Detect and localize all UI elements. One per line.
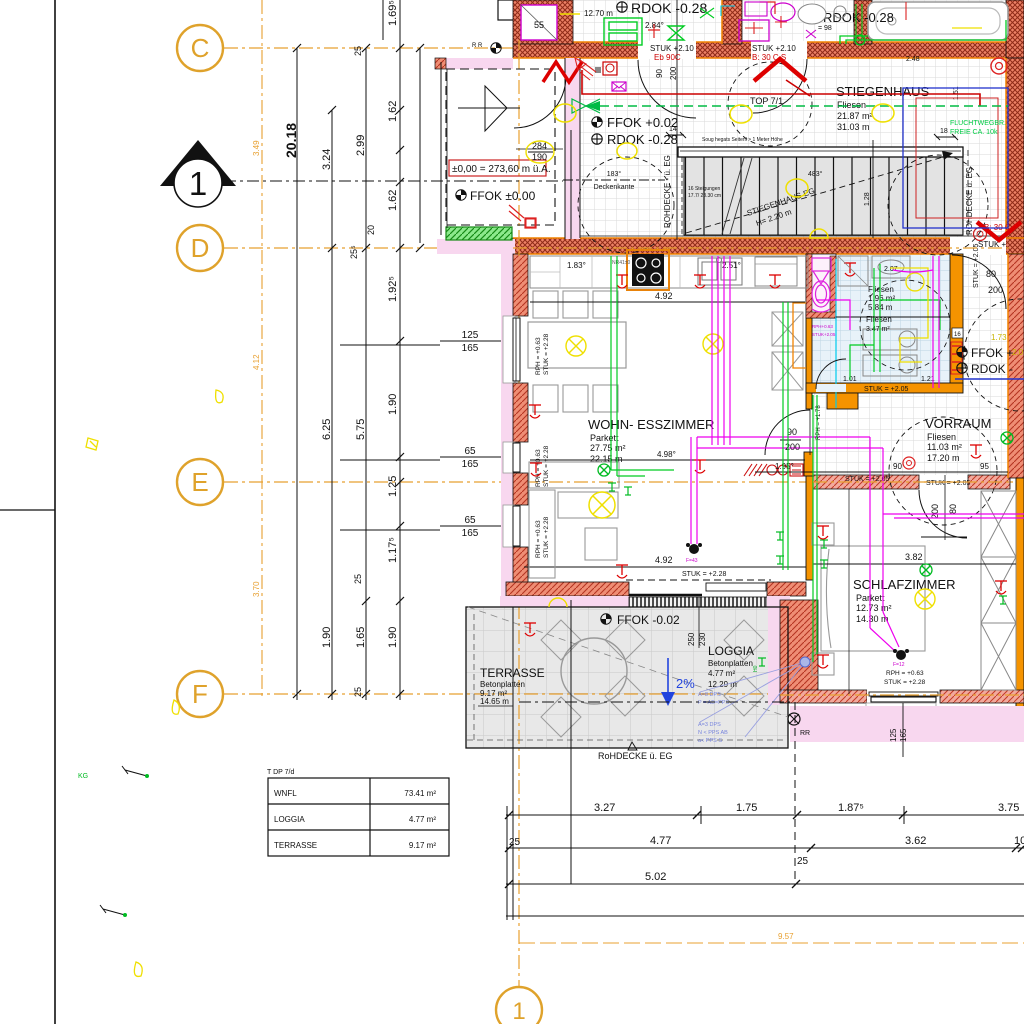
svg-text:4.77 m²: 4.77 m² xyxy=(409,815,436,824)
svg-text:STUK = +2.28: STUK = +2.28 xyxy=(543,516,550,558)
svg-text:14.30 m: 14.30 m xyxy=(856,614,889,624)
svg-text:STUK = +2.05: STUK = +2.05 xyxy=(926,480,970,487)
svg-text:31.03 m: 31.03 m xyxy=(837,122,870,132)
svg-text:WNFL: WNFL xyxy=(274,789,297,798)
svg-text:RoHDECKE ü. EG: RoHDECKE ü. EG xyxy=(598,751,673,761)
svg-text:STUK = +2.28: STUK = +2.28 xyxy=(543,333,550,375)
svg-text:A=8 DPS: A=8 DPS xyxy=(698,692,721,698)
svg-text:LOGGIA: LOGGIA xyxy=(708,644,754,658)
svg-text:18: 18 xyxy=(940,128,948,135)
svg-text:16: 16 xyxy=(954,332,961,338)
svg-text:SCHLAFZIMMER: SCHLAFZIMMER xyxy=(853,577,956,592)
svg-text:11.03 m²: 11.03 m² xyxy=(927,442,962,452)
svg-text:RPH = +0.63: RPH = +0.63 xyxy=(886,670,924,677)
svg-text:1.25: 1.25 xyxy=(387,476,399,497)
svg-text:WOHN- ESSZIMMER: WOHN- ESSZIMMER xyxy=(588,417,714,432)
svg-text:1.73: 1.73 xyxy=(991,333,1007,342)
svg-text:10: 10 xyxy=(1014,835,1024,847)
svg-text:65: 65 xyxy=(464,446,476,457)
svg-text:1: 1 xyxy=(189,165,207,202)
svg-text:25⁵: 25⁵ xyxy=(349,245,359,259)
svg-text:165: 165 xyxy=(462,528,479,539)
svg-text:E: E xyxy=(191,467,208,497)
svg-text:RPH = +0.63: RPH = +0.63 xyxy=(535,520,542,558)
svg-text:1.83°: 1.83° xyxy=(567,261,586,270)
svg-text:RPH = +0.63: RPH = +0.63 xyxy=(535,337,542,375)
svg-text:12.70 m: 12.70 m xyxy=(584,9,613,18)
svg-text:125: 125 xyxy=(889,728,898,742)
svg-text:T DP 7/d: T DP 7/d xyxy=(267,769,294,776)
svg-text:1.17⁵: 1.17⁵ xyxy=(387,537,399,563)
svg-text:STUK = +2.28: STUK = +2.28 xyxy=(884,679,926,686)
svg-text:2.51°: 2.51° xyxy=(722,261,741,270)
svg-text:STUK = +2.05: STUK = +2.05 xyxy=(864,386,908,393)
svg-text:RDOK -0.28: RDOK -0.28 xyxy=(631,0,707,16)
svg-text:Fliesen: Fliesen xyxy=(927,432,956,442)
svg-text:Fliesen: Fliesen xyxy=(866,315,892,324)
svg-text:Betonplatten: Betonplatten xyxy=(480,680,525,689)
svg-text:2.07: 2.07 xyxy=(884,266,898,273)
svg-text:27.75 m²: 27.75 m² xyxy=(590,443,626,453)
svg-text:1.95°: 1.95° xyxy=(775,462,794,471)
svg-text:4.92: 4.92 xyxy=(655,555,673,565)
svg-text:17.7/ 28.30 cm: 17.7/ 28.30 cm xyxy=(688,193,721,199)
svg-text:STUK = +2.05: STUK = +2.05 xyxy=(973,244,980,288)
svg-text:20.18: 20.18 xyxy=(283,123,299,158)
svg-text:F=12: F=12 xyxy=(893,662,905,668)
svg-text:Betonplatten: Betonplatten xyxy=(708,659,753,668)
svg-text:D: D xyxy=(191,233,210,263)
svg-text:2%: 2% xyxy=(676,676,695,691)
svg-text:C: C xyxy=(191,33,210,63)
svg-text:125: 125 xyxy=(462,330,479,341)
svg-text:3.70: 3.70 xyxy=(252,581,261,597)
svg-text:RDOK -: RDOK - xyxy=(971,362,1013,376)
svg-text:16 Steigungen: 16 Steigungen xyxy=(688,186,720,192)
svg-text:9.57: 9.57 xyxy=(778,932,794,941)
svg-text:3.82: 3.82 xyxy=(905,552,923,562)
svg-text:55: 55 xyxy=(534,20,544,30)
svg-text:RR: RR xyxy=(800,730,810,737)
svg-text:Eb 90C: Eb 90C xyxy=(654,53,681,62)
svg-text:H0: H0 xyxy=(753,665,759,672)
svg-text:165: 165 xyxy=(899,728,908,742)
svg-text:4.98°: 4.98° xyxy=(657,450,676,459)
svg-text:190: 190 xyxy=(532,152,547,162)
svg-text:F: F xyxy=(192,679,208,709)
svg-text:17.20 m: 17.20 m xyxy=(927,453,960,463)
svg-text:STUK = +2.28: STUK = +2.28 xyxy=(682,571,726,578)
svg-text:Deckenkante: Deckenkante xyxy=(594,184,635,191)
svg-text:STUK+2.05: STUK+2.05 xyxy=(812,332,836,337)
svg-text:ROHDECKE - ü. EG: ROHDECKE - ü. EG xyxy=(663,155,672,228)
svg-text:1.96 m²: 1.96 m² xyxy=(868,294,895,303)
svg-text:95: 95 xyxy=(980,462,989,471)
svg-text:3.62: 3.62 xyxy=(905,835,926,847)
svg-text:FFOK -0.02: FFOK -0.02 xyxy=(617,613,680,627)
svg-text:NR41±0: NR41±0 xyxy=(612,260,631,266)
svg-text:12.29 m: 12.29 m xyxy=(708,680,737,689)
svg-text:4.77 m²: 4.77 m² xyxy=(708,669,735,678)
svg-text:STUK = +2.28: STUK = +2.28 xyxy=(543,445,550,487)
svg-text:P = AB=PPS: P = AB=PPS xyxy=(698,700,729,706)
svg-text:483°: 483° xyxy=(808,170,823,178)
svg-text:5.02: 5.02 xyxy=(645,871,666,883)
svg-text:90: 90 xyxy=(893,462,902,471)
svg-text:3.27: 3.27 xyxy=(594,802,615,814)
svg-text:RDOK -0.28: RDOK -0.28 xyxy=(607,132,678,147)
svg-text:FREIE CA. 10k: FREIE CA. 10k xyxy=(950,129,998,136)
svg-text:RPH+0.63: RPH+0.63 xyxy=(812,324,833,329)
svg-text:14: 14 xyxy=(669,126,677,133)
svg-text:STUK +2.10: STUK +2.10 xyxy=(752,44,796,53)
svg-text:A=3 DPS: A=3 DPS xyxy=(698,722,721,728)
svg-text:4.92: 4.92 xyxy=(655,291,673,301)
svg-text:6.25: 6.25 xyxy=(321,419,333,440)
svg-text:25: 25 xyxy=(509,837,521,848)
svg-text:20: 20 xyxy=(366,225,376,235)
svg-text:165: 165 xyxy=(462,343,479,354)
svg-text:200: 200 xyxy=(988,285,1003,295)
svg-text:1.92⁵: 1.92⁵ xyxy=(387,276,399,302)
svg-text:1.75: 1.75 xyxy=(736,802,757,814)
svg-text:3.24: 3.24 xyxy=(321,149,333,170)
svg-text:2.0: 2.0 xyxy=(1012,348,1024,357)
svg-text:4.77: 4.77 xyxy=(650,835,671,847)
svg-text:FFOK ±0.00: FFOK ±0.00 xyxy=(470,189,536,203)
svg-text:14.65 m: 14.65 m xyxy=(480,697,509,706)
svg-text:73.41 m²: 73.41 m² xyxy=(404,789,436,798)
svg-text:FFOK +: FFOK + xyxy=(971,346,1013,360)
svg-text:5.75: 5.75 xyxy=(355,419,367,440)
svg-text:1.62: 1.62 xyxy=(387,190,399,211)
svg-text:90: 90 xyxy=(655,69,664,78)
svg-text:1.90: 1.90 xyxy=(387,394,399,415)
svg-text:200: 200 xyxy=(669,66,678,80)
svg-text:Parkett: Parkett xyxy=(590,433,619,443)
svg-text:KG: KG xyxy=(78,773,88,780)
svg-text:65: 65 xyxy=(464,515,476,526)
svg-text:12.73 m²: 12.73 m² xyxy=(856,603,892,613)
svg-text:a< PPS S: a< PPS S xyxy=(698,738,722,744)
svg-text:25: 25 xyxy=(353,687,363,697)
svg-text:ROHDECKE ü. EG: ROHDECKE ü. EG xyxy=(965,167,974,235)
svg-text:3.49: 3.49 xyxy=(252,140,261,156)
svg-text:Soug hegats Seitenl > 1 Meter: Soug hegats Seitenl > 1 Meter Höhe xyxy=(702,137,783,143)
svg-text:200: 200 xyxy=(785,442,800,452)
svg-text:4.12: 4.12 xyxy=(252,354,261,370)
svg-text:25: 25 xyxy=(353,46,363,56)
svg-text:1.65: 1.65 xyxy=(355,627,367,648)
svg-text:TERRASSE: TERRASSE xyxy=(274,841,317,850)
svg-text:1.28: 1.28 xyxy=(864,192,871,206)
svg-text:VORRAUM: VORRAUM xyxy=(925,416,991,431)
svg-text:1.62: 1.62 xyxy=(387,101,399,122)
svg-text:1.90: 1.90 xyxy=(321,627,333,648)
svg-text:N < PPS AB: N < PPS AB xyxy=(698,730,728,736)
svg-text:200: 200 xyxy=(930,504,940,519)
svg-text:2.99: 2.99 xyxy=(355,135,367,156)
svg-text:80: 80 xyxy=(986,269,996,279)
svg-text:21.87 m²: 21.87 m² xyxy=(837,111,873,121)
svg-text:183°: 183° xyxy=(607,170,622,178)
svg-text:25: 25 xyxy=(353,574,363,584)
svg-text:1: 1 xyxy=(512,998,525,1024)
svg-text:1.87⁵: 1.87⁵ xyxy=(838,802,864,814)
svg-text:STIEGENHAUS: STIEGENHAUS xyxy=(836,84,930,99)
svg-text:Fliesen: Fliesen xyxy=(837,100,866,110)
svg-text:FFOK +0.02: FFOK +0.02 xyxy=(607,115,678,130)
svg-text:TOP 7/1: TOP 7/1 xyxy=(750,96,783,106)
svg-text:= 98: = 98 xyxy=(818,25,832,32)
svg-text:80: 80 xyxy=(948,504,958,514)
svg-text:STUK +2.10: STUK +2.10 xyxy=(650,44,694,53)
svg-text:250: 250 xyxy=(687,632,696,646)
svg-text:1.69⁵: 1.69⁵ xyxy=(387,0,399,26)
svg-text:LOGGIA: LOGGIA xyxy=(274,815,305,824)
svg-text:Fliesen: Fliesen xyxy=(868,285,894,294)
svg-text:3.47 m²: 3.47 m² xyxy=(866,326,890,333)
svg-text:3.75: 3.75 xyxy=(998,802,1019,814)
svg-text:165: 165 xyxy=(462,459,479,470)
svg-text:25: 25 xyxy=(797,856,809,867)
svg-text:9.17 m²: 9.17 m² xyxy=(409,841,436,850)
svg-text:1.90: 1.90 xyxy=(387,627,399,648)
svg-text:±0,00 = 273,60 m ü.A.: ±0,00 = 273,60 m ü.A. xyxy=(452,164,551,175)
svg-text:TERRASSE: TERRASSE xyxy=(480,666,545,680)
svg-text:2.48: 2.48 xyxy=(906,56,920,63)
svg-text:FLUCHTWEGBR.: FLUCHTWEGBR. xyxy=(950,120,1006,127)
svg-text:F=43: F=43 xyxy=(686,558,698,564)
svg-text:R R: R R xyxy=(472,43,483,49)
